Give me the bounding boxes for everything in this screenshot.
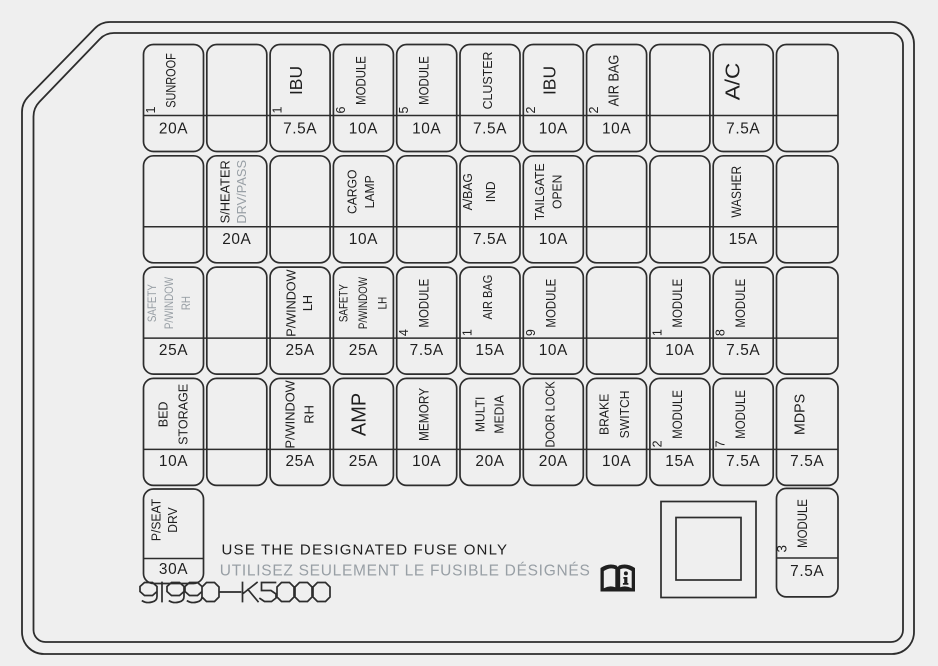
svg-text:A/BAG: A/BAG [461,173,476,210]
svg-text:CARGO: CARGO [345,169,360,214]
svg-text:IBU: IBU [539,66,559,95]
svg-text:USE THE DESIGNATED FUSE ONLY: USE THE DESIGNATED FUSE ONLY [222,542,508,559]
svg-text:CLUSTER: CLUSTER [480,52,495,110]
svg-text:7.5A: 7.5A [473,231,507,248]
svg-text:SAFETY: SAFETY [338,284,351,322]
svg-text:2: 2 [650,440,664,447]
svg-text:25A: 25A [286,342,315,359]
svg-text:1: 1 [461,329,475,336]
svg-text:MODULE: MODULE [417,56,432,105]
svg-text:5: 5 [397,107,411,114]
svg-text:10A: 10A [602,121,631,138]
svg-text:3: 3 [775,545,790,553]
svg-text:15A: 15A [665,453,694,470]
svg-text:MODULE: MODULE [670,279,685,328]
svg-text:LH: LH [377,297,390,309]
svg-text:30A: 30A [159,561,188,578]
svg-text:RH: RH [180,296,193,310]
svg-text:SUNROOF: SUNROOF [163,53,178,108]
svg-text:MODULE: MODULE [354,56,369,105]
svg-text:1: 1 [271,107,285,114]
svg-text:15A: 15A [475,342,504,359]
svg-text:MEMORY: MEMORY [416,387,432,441]
svg-text:7.5A: 7.5A [726,121,760,138]
svg-text:AMP: AMP [348,393,370,436]
svg-text:7.5A: 7.5A [283,121,317,138]
svg-text:BRAKE: BRAKE [597,394,612,435]
svg-text:MODULE: MODULE [543,279,558,328]
svg-text:AIR BAG: AIR BAG [480,275,495,320]
svg-text:8: 8 [714,329,728,336]
svg-text:1: 1 [144,107,158,114]
svg-text:MDPS: MDPS [792,394,808,435]
svg-text:10A: 10A [349,121,378,138]
svg-text:MODULE: MODULE [733,279,748,328]
svg-text:20A: 20A [222,231,251,248]
svg-text:2: 2 [587,107,601,114]
svg-text:LAMP: LAMP [363,175,378,208]
svg-text:20A: 20A [475,453,504,470]
svg-text:MEDIA: MEDIA [492,395,507,434]
svg-text:MULTI: MULTI [473,397,488,433]
svg-text:10A: 10A [539,121,568,138]
svg-text:7.5A: 7.5A [410,342,444,359]
svg-text:25A: 25A [159,342,188,359]
svg-text:P/WINDOW: P/WINDOW [163,276,176,329]
svg-text:7.5A: 7.5A [473,121,507,138]
svg-text:10A: 10A [665,342,694,359]
svg-text:DRV/PASS: DRV/PASS [234,160,249,224]
svg-text:25A: 25A [286,453,315,470]
svg-text:A/C: A/C [721,63,744,101]
svg-text:IND: IND [483,181,498,202]
svg-text:10A: 10A [412,121,441,138]
svg-text:7: 7 [714,440,728,447]
svg-text:7.5A: 7.5A [726,453,760,470]
svg-text:RH: RH [301,405,316,423]
svg-text:SWITCH: SWITCH [617,390,632,438]
svg-text:P/SEAT: P/SEAT [149,499,164,542]
svg-text:10A: 10A [412,453,441,470]
svg-text:SAFETY: SAFETY [146,284,159,322]
svg-text:STORAGE: STORAGE [175,383,190,444]
svg-text:MODULE: MODULE [670,390,685,439]
svg-text:20A: 20A [539,453,568,470]
svg-text:S/HEATER: S/HEATER [217,160,232,223]
svg-text:AIR BAG: AIR BAG [605,55,622,107]
svg-text:TAILGATE: TAILGATE [532,163,547,220]
svg-text:10A: 10A [539,342,568,359]
svg-text:4: 4 [397,329,411,336]
svg-text:15A: 15A [729,231,758,248]
svg-text:LH: LH [300,295,315,311]
svg-text:P/WINDOW: P/WINDOW [358,276,371,329]
svg-text:7.5A: 7.5A [726,342,760,359]
svg-text:10A: 10A [539,231,568,248]
svg-text:WASHER: WASHER [728,166,744,218]
svg-text:DOOR LOCK: DOOR LOCK [542,381,557,447]
svg-text:1: 1 [650,329,664,336]
svg-text:9: 9 [524,329,538,336]
svg-text:2: 2 [524,107,538,114]
svg-text:BED: BED [155,402,170,428]
svg-text:10A: 10A [159,453,188,470]
svg-text:MODULE: MODULE [733,390,748,439]
svg-text:10A: 10A [349,231,378,248]
svg-text:DRV: DRV [165,507,180,533]
svg-text:P/WINDOW: P/WINDOW [282,380,297,449]
svg-text:OPEN: OPEN [550,175,565,209]
svg-text:25A: 25A [349,453,378,470]
svg-text:MODULE: MODULE [795,499,810,548]
svg-text:IBU: IBU [286,66,306,95]
svg-text:7.5A: 7.5A [790,453,824,470]
svg-text:MODULE: MODULE [417,279,432,328]
svg-text:6: 6 [334,107,348,114]
svg-text:10A: 10A [602,453,631,470]
svg-text:25A: 25A [349,342,378,359]
svg-text:20A: 20A [159,121,188,138]
svg-text:UTILISEZ SEULEMENT LE FUSIBLE: UTILISEZ SEULEMENT LE FUSIBLE DÉSIGNÉS [220,563,590,580]
svg-text:P/WINDOW: P/WINDOW [283,269,298,337]
svg-text:7.5A: 7.5A [790,563,824,580]
